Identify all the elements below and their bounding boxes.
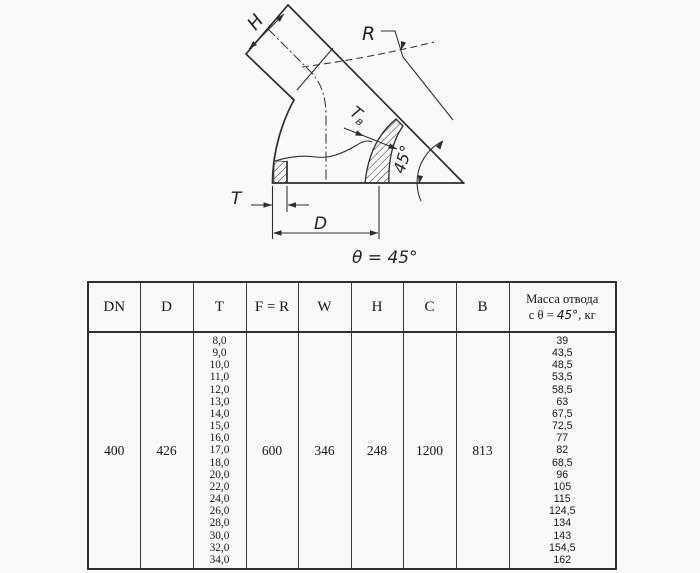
cell-dn: 400 (88, 332, 140, 569)
header-b: B (456, 282, 509, 332)
header-w: W (298, 282, 351, 332)
left-wall-section-hatched (274, 161, 287, 183)
header-mass-suffix: , кг (578, 308, 596, 322)
label-tv: Tв (345, 102, 371, 129)
cell-c: 1200 (403, 332, 456, 569)
header-t: T (193, 282, 246, 332)
pipe-centerline (268, 29, 326, 183)
cell-w: 346 (298, 332, 351, 569)
header-f-r: F = R (246, 282, 298, 332)
cell-t-values: 8,0 9,0 10,0 11,0 12,0 13,0 14,0 15,0 16… (193, 332, 246, 569)
dimension-arrowheads (247, 12, 445, 236)
cell-h: 248 (351, 332, 403, 569)
header-c: C (403, 282, 456, 332)
d-arrow-left (273, 230, 282, 235)
label-r: R (362, 23, 375, 45)
elbow-technical-drawing: H R Tв 45° T D θ = 45° (0, 0, 700, 272)
label-h: H (243, 10, 268, 34)
cell-f-r: 600 (246, 332, 298, 569)
left-edge-line (246, 54, 294, 100)
header-d: D (140, 282, 193, 332)
d-arrow-right (370, 230, 379, 235)
header-mass-line1: Масса отвода (510, 291, 616, 307)
angle-45-arc (417, 141, 443, 201)
break-wavy-line (275, 141, 372, 161)
r-leader-line (381, 31, 453, 120)
label-d: D (314, 214, 327, 234)
cell-mass-values: 39 43,5 48,5 53,5 58,5 63 67,5 72,5 77 8… (509, 332, 616, 569)
t-arrow-left (264, 202, 273, 207)
cell-b: 813 (456, 332, 509, 569)
header-h: H (351, 282, 403, 332)
tangent-junction-line (297, 48, 333, 90)
label-theta-equation: θ = 45° (352, 248, 418, 268)
header-mass-prefix: с θ = (529, 308, 557, 322)
dimension-table: DN D T F = R W H C B Масса отвода с θ = … (87, 281, 617, 570)
header-dn: DN (88, 282, 140, 332)
radius-dashed-arc (302, 42, 434, 67)
header-mass-angle: 45° (557, 308, 578, 322)
table-header-row: DN D T F = R W H C B Масса отвода с θ = … (88, 282, 616, 332)
tv-arrow-left (355, 130, 365, 138)
label-t: T (231, 189, 243, 209)
header-mass: Масса отвода с θ = 45°, кг (509, 282, 616, 332)
page: H R Tв 45° T D θ = 45° DN D T F = R W H … (0, 0, 700, 573)
cell-d: 426 (140, 332, 193, 569)
table-data-row: 400 426 8,0 9,0 10,0 11,0 12,0 13,0 14,0… (88, 332, 616, 569)
header-mass-line2: с θ = 45°, кг (510, 307, 616, 324)
t-arrow-right (288, 202, 297, 207)
